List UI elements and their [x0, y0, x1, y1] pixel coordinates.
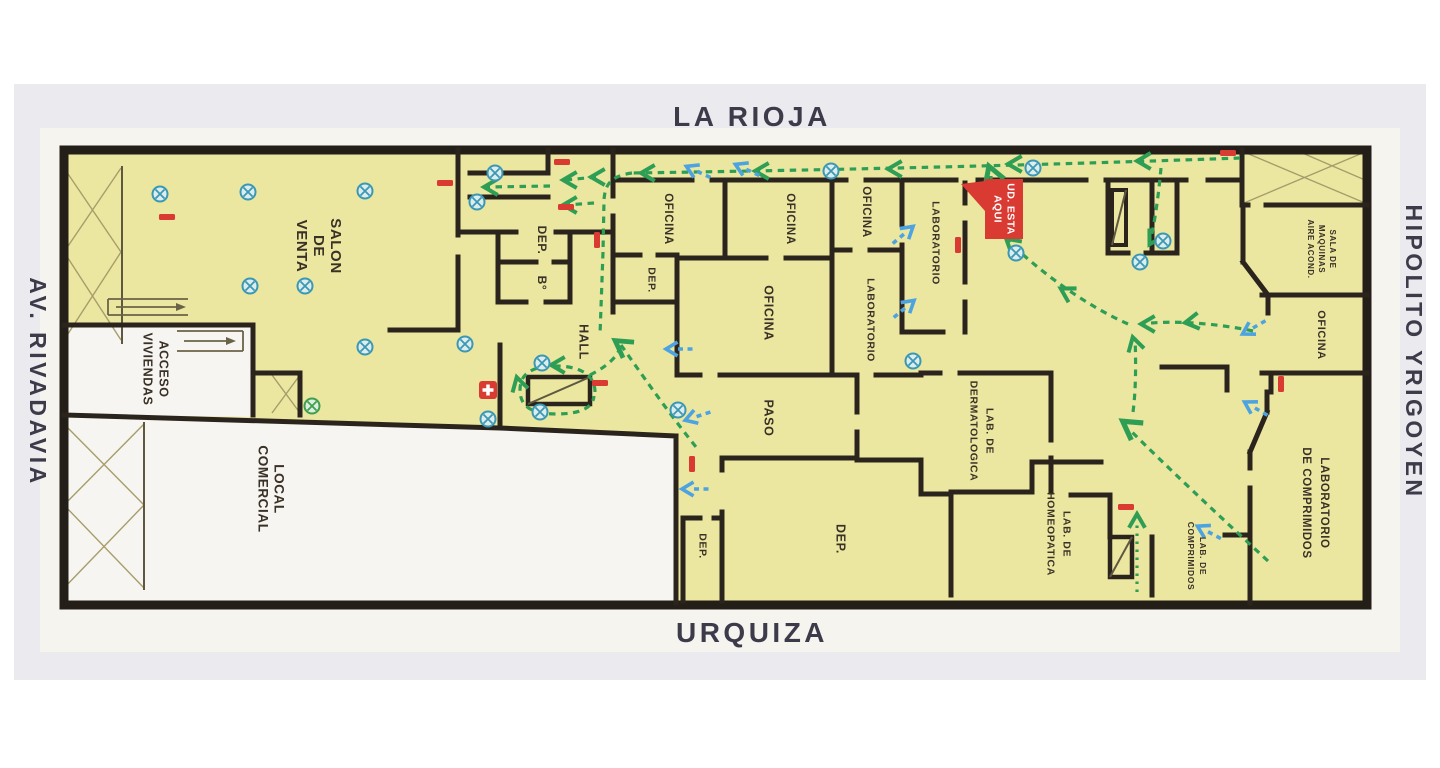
room-label-dermatologica-line2: DERMATOLOGICA [967, 381, 979, 482]
emergency-light-icon [1156, 234, 1171, 249]
room-label-oficina-1: OFICINA [662, 193, 674, 244]
fire-extinguisher-icon [558, 204, 574, 210]
room-label-oficina-derecha: OFICINA [1315, 310, 1327, 359]
you-are-here-line2: AQUI [991, 195, 1003, 223]
room-label-dep-grande: DEP. [834, 524, 848, 554]
room-label-acceso-line1: ACCESO [157, 340, 171, 397]
room-label-oficina-central: OFICINA [762, 285, 776, 341]
fire-extinguisher-icon [1278, 376, 1284, 392]
room-label-homeopatica-line2: HOMEOPATICA [1044, 492, 1056, 576]
room-label-dep-mid: DEP. [645, 267, 657, 293]
room-label-comprimidos-chico-line1: LAB. DE [1198, 537, 1208, 575]
fire-extinguisher-icon [955, 237, 961, 253]
room-label-local-line1: LOCAL [271, 464, 286, 514]
street-bottom-label: URQUIZA [676, 617, 828, 648]
room-label-dermatologica-line1: LAB. DE [983, 408, 995, 454]
fire-extinguisher-icon [592, 380, 608, 386]
emergency-light-icon [241, 185, 256, 200]
evacuation-plan-photo: LA RIOJA URQUIZA AV. RIVADAVIA HIPOLITO … [0, 0, 1440, 768]
emergency-light-icon [153, 187, 168, 202]
room-label-homeopatica-line1: LAB. DE [1060, 511, 1072, 557]
room-label-dep-bajo: DEP. [696, 533, 708, 559]
room-label-sala-maquinas-line1: SALA DE [1328, 229, 1337, 268]
emergency-light-icon [533, 405, 548, 420]
first-aid-icon [479, 381, 497, 399]
room-label-laboratorio-comprimidos-line2: DE COMPRIMIDOS [1300, 447, 1312, 558]
emergency-light-icon [1026, 161, 1041, 176]
emergency-light-icon [488, 166, 503, 181]
room-label-salon-line3: VENTA [293, 220, 310, 273]
emergency-light-icon [305, 399, 320, 414]
room-label-acceso-line2: VIVIENDAS [141, 333, 155, 406]
fire-extinguisher-icon [159, 214, 175, 220]
street-top-label: LA RIOJA [673, 101, 831, 132]
emergency-light-icon [671, 403, 686, 418]
fire-extinguisher-icon [1118, 504, 1134, 510]
emergency-light-icon [358, 340, 373, 355]
fire-extinguisher-icon [437, 180, 453, 186]
room-label-laboratorio-2: LABORATORIO [929, 201, 941, 285]
room-label-banio: B° [535, 276, 549, 291]
emergency-light-icon [535, 356, 550, 371]
room-label-laboratorio-1: LABORATORIO [864, 278, 876, 362]
fire-extinguisher-icon [554, 159, 570, 165]
fire-extinguisher-icon [689, 456, 695, 472]
emergency-light-icon [458, 337, 473, 352]
emergency-light-icon [1009, 246, 1024, 261]
fire-extinguisher-icon [594, 232, 600, 248]
emergency-light-icon [824, 164, 839, 179]
fire-extinguisher-icon [1220, 150, 1236, 156]
emergency-light-icon [243, 279, 258, 294]
room-label-salon-line2: DE [310, 235, 327, 257]
emergency-light-icon [358, 184, 373, 199]
you-are-here-line1: UD. ESTA [1004, 183, 1016, 234]
emergency-light-icon [906, 354, 921, 369]
street-right-label: HIPOLITO YRIGOYEN [1401, 204, 1427, 499]
room-label-salon-line1: SALON [327, 218, 344, 274]
street-left-label: AV. RIVADAVIA [25, 277, 51, 487]
local-comercial-floor [64, 415, 676, 603]
room-label-laboratorio-comprimidos-line1: LABORATORIO [1318, 457, 1330, 548]
emergency-light-icon [481, 412, 496, 427]
room-label-dep-top: DEP. [535, 226, 549, 255]
floor-plan-canvas: LA RIOJA URQUIZA AV. RIVADAVIA HIPOLITO … [0, 0, 1440, 768]
emergency-light-icon [1133, 255, 1148, 270]
room-label-comprimidos-chico-line2: COMPRIMIDOS [1186, 522, 1196, 590]
room-label-oficina-2: OFICINA [784, 193, 796, 244]
emergency-light-icon [298, 279, 313, 294]
emergency-light-icon [470, 195, 485, 210]
room-label-oficina-3: OFICINA [860, 186, 872, 237]
room-label-local-line2: COMERCIAL [255, 445, 270, 532]
room-label-paso: PASO [762, 400, 776, 437]
room-label-sala-maquinas-line3: AIRE ACOND. [1306, 219, 1315, 278]
room-label-hall: HALL [577, 324, 591, 360]
room-label-sala-maquinas-line2: MAQUINAS [1317, 225, 1326, 273]
